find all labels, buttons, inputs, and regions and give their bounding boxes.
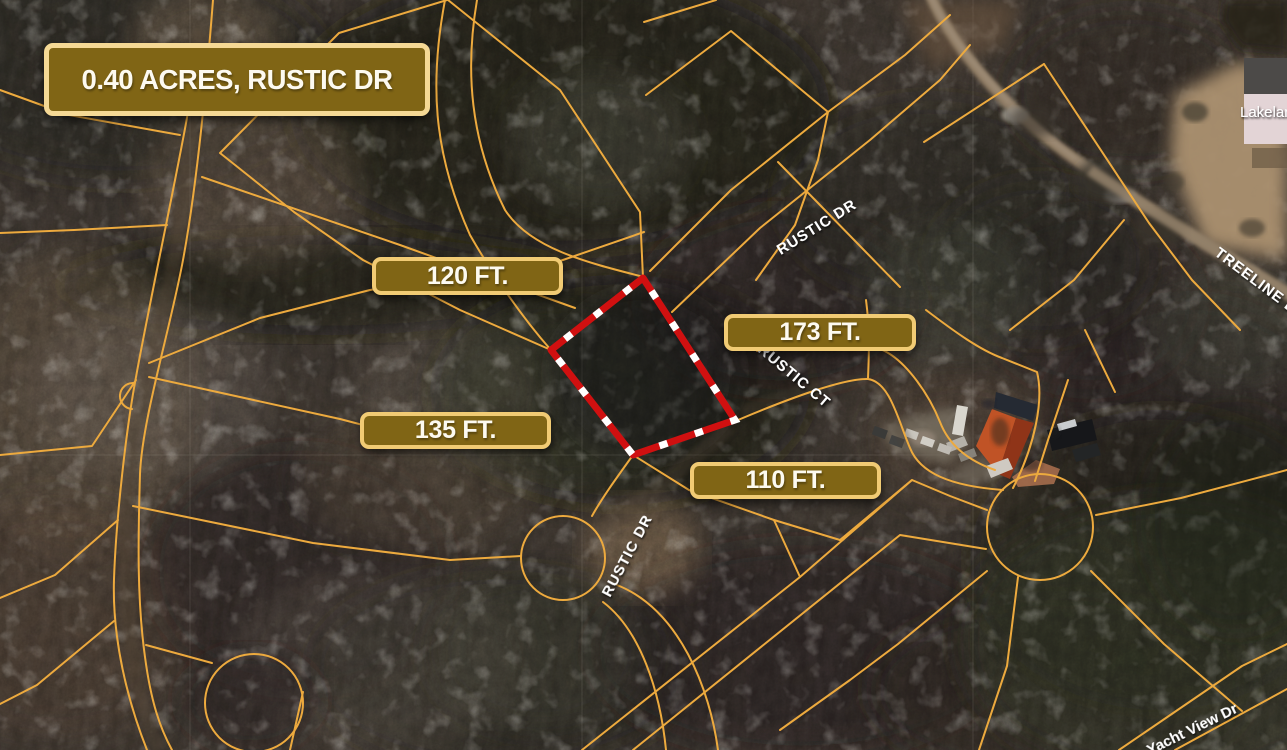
svg-text:Lakeland: Lakeland — [1240, 104, 1287, 121]
